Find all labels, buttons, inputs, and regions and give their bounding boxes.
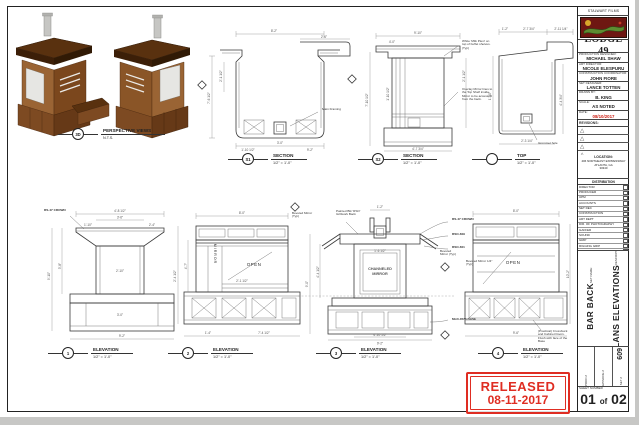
- perspective-views-drawing: [14, 12, 194, 134]
- view-title: SECTION: [401, 153, 437, 160]
- elevation4-title: 4 ELEVATION 1/2" = 1'-0": [478, 347, 563, 359]
- dim-label: 2'-1 1/2": [236, 279, 248, 283]
- dim-label: 1'-6 1/2": [374, 249, 386, 253]
- dim-label: 9'-0": [305, 281, 309, 287]
- dim-label: 9'-10": [47, 272, 51, 280]
- dim-label: 4'-7 3/4": [412, 147, 424, 151]
- elevation4-note-left: Beveled Mirror (Typ): [440, 250, 456, 257]
- dim-label: 1'-10 1/2": [386, 87, 390, 100]
- location-block: LOCATION: 406 NORTHEAST EXPRESSWAY ATLAN…: [578, 155, 629, 179]
- channeled-mirror-label: CHANNELED: [368, 267, 392, 271]
- studio-name: STALWART FILMS: [578, 7, 629, 16]
- dim-label: 2'-3 1/4": [521, 139, 533, 143]
- dim-label: 8'-2": [271, 29, 277, 33]
- checkbox-icon: [623, 223, 627, 227]
- released-stamp: RELEASED 08-11-2017: [466, 372, 570, 414]
- view-title: PERSPECTIVE VIEWS: [101, 128, 165, 135]
- dim-label: 2'-6": [321, 35, 327, 39]
- sheet-number-current: 01: [580, 391, 596, 407]
- show-logo: [578, 16, 629, 40]
- dim-label: 2'-4": [149, 223, 155, 227]
- view-title: SECTION: [271, 153, 307, 160]
- credit-set-designer: SET DESIGNER:LANCE TOTTEN: [578, 82, 629, 92]
- view-tag-circle: 3D: [72, 128, 84, 140]
- credit-scale: SCALE:AS NOTED: [578, 101, 629, 111]
- view-tag: S2: [375, 157, 380, 162]
- view-title: ELEVATION: [91, 347, 133, 354]
- elevation4-note-doors: (Practical) Crossbuck and Cabinet Doors.…: [538, 330, 572, 344]
- checkbox-icon: [623, 185, 627, 189]
- dim-label: 2'-1 1/2": [462, 70, 466, 82]
- elevation3-note-left: Painted Blk 'RSO' Grillwork Back: [336, 210, 366, 217]
- checkbox-icon: [623, 207, 627, 211]
- view-ref-marker: [441, 263, 449, 339]
- dim-label: 1'-2": [502, 27, 508, 31]
- view-title: ELEVATION: [211, 347, 253, 354]
- credit-art-director: ART DIRECTOR:NICOLE ELESPURU: [578, 63, 629, 73]
- top-view-title: TOP 1/2" = 1'-0": [472, 153, 540, 165]
- title-block: STALWART FILMS LODGE 49 PRODUCTION DESIG…: [577, 7, 628, 411]
- sheet-number-block: SHEET NUMBER 01 of 02: [578, 387, 629, 409]
- cabinet-right: [114, 15, 190, 138]
- sheet-number-of: of: [600, 397, 608, 406]
- credit-construction-coordinator: CONSTRUCTION COORDINATOR:JOHN FIORE: [578, 72, 629, 82]
- drawing-sheet-page: { "titleblock": { "studio": "STALWART FI…: [0, 0, 639, 425]
- show-title: LODGE 49: [578, 40, 629, 53]
- view-tag: 2: [187, 351, 189, 356]
- dim-label: 1'-10 1/2": [241, 148, 254, 152]
- dim-label: 4'-8 1/2": [114, 209, 126, 213]
- checkbox-icon: [623, 212, 627, 216]
- dim-label: 3'-8": [58, 263, 62, 269]
- elevation-4-drawing: OPEN 8'-0" 10'-2" 9'-6": [455, 196, 573, 346]
- dim-label: 8'-0": [513, 209, 519, 213]
- view-title: TOP: [515, 153, 540, 160]
- set-name-value: BAR BACK: [586, 283, 595, 330]
- elevation-2-drawing: MIRROR OPEN 8'-0" 2'-4 1/2" 4'-7" 2'-1 1…: [168, 196, 308, 346]
- set-number-label: SET #: [619, 377, 623, 385]
- dim-label: 4'-7": [184, 263, 188, 269]
- view-scale: 1/2" = 1'-0": [91, 354, 133, 359]
- dim-label: 2'-7 3/4": [523, 27, 535, 31]
- section-1-drawing: 8'-2" 2'-6" 2'-1 1/2" 7'-6 1/2" 3'-0" 1'…: [200, 16, 360, 152]
- open-label: OPEN: [247, 262, 262, 267]
- perspective-view-title: 3D PERSPECTIVE VIEWS N.T.S.: [58, 128, 165, 140]
- top-view-note: Grommet hole: [538, 142, 568, 145]
- checkbox-icon: [623, 239, 627, 243]
- view-title: ELEVATION: [521, 347, 563, 354]
- dim-label: 2'-11 1/4": [554, 27, 567, 31]
- revision-triangle-icon: △: [580, 128, 584, 134]
- mirror-label: MIRROR: [213, 244, 217, 265]
- elevation1-crown-callout: RS-47 CROWN: [44, 209, 74, 212]
- dim-label: 9'-10": [414, 31, 422, 35]
- view-scale: N.T.S.: [101, 135, 165, 140]
- view-scale: 1/2" = 1'-0": [211, 354, 253, 359]
- set-name-block: SET NAME: BAR BACK DESCRIPTION: PLANS EL…: [578, 251, 629, 347]
- dim-label: 2'-10": [116, 269, 124, 273]
- dim-label: 1'-4": [205, 331, 211, 335]
- dim-label: 4'-4 1/2": [316, 266, 320, 278]
- checkbox-icon: [623, 228, 627, 232]
- dim-label: 7'-4 1/2": [258, 331, 270, 335]
- section1-title: S1 SECTION 1/2" = 1'-0": [228, 153, 307, 165]
- elevation-3-drawing: CHANNELED MIRROR 1'-2" 9'-0" 4'-4 1/2" 1…: [296, 192, 456, 348]
- elevation3-title: 3 ELEVATION 1/2" = 1'-0": [316, 347, 401, 359]
- distribution-list: DIRECTOR PRODUCER UPM ACCOUNTS SET DEC C…: [578, 185, 629, 251]
- dim-label: 1'-10": [488, 92, 492, 100]
- dim-label: 9'-2": [119, 334, 125, 338]
- dim-label: 3'-6": [117, 216, 123, 220]
- dim-label: 2'-1 1/2": [219, 70, 223, 82]
- view-scale: 1/2" = 1'-0": [401, 160, 437, 165]
- view-title: ELEVATION: [359, 347, 401, 354]
- revisions-rows: △ △ △ △: [578, 127, 629, 155]
- checkbox-icon: [623, 244, 627, 248]
- dim-label: 8'-0": [239, 211, 245, 215]
- dim-label: 9'-2": [307, 148, 313, 152]
- dim-label: 3'-0": [117, 313, 123, 317]
- view-tag: 3D: [75, 132, 80, 137]
- view-scale: 1/2" = 1'-0": [271, 160, 307, 165]
- checkbox-icon: [623, 196, 627, 200]
- checkbox-icon: [623, 201, 627, 205]
- view-tag: S1: [245, 157, 250, 162]
- view-tag: 4: [497, 351, 499, 356]
- elevation1-title: 1 ELEVATION 1/2" = 1'-0": [48, 347, 133, 359]
- revisions-header: REVISIONS:: [578, 120, 629, 127]
- view-scale: 1/2" = 1'-0": [521, 354, 563, 359]
- channeled-mirror-label2: MIRROR: [372, 272, 388, 276]
- episode-block: PROD # EPISODE # 609 SET #: [578, 347, 629, 387]
- credit-drawn-by: DRAWN BY:B. KING: [578, 91, 629, 101]
- view-tag: 3: [335, 351, 337, 356]
- checkbox-icon: [623, 217, 627, 221]
- dim-label: 3'-0": [277, 141, 283, 145]
- dim-label: 4'-10 1/2": [373, 333, 386, 337]
- sheet-number-total: 02: [611, 391, 627, 407]
- section2-title: S2 SECTION 1/2" = 1'-0": [358, 153, 437, 165]
- description-value: PLANS ELEVATIONS: [611, 265, 621, 347]
- set-name-label: SET NAME:: [589, 267, 593, 283]
- section-2-drawing: 9'-10" 4'-0" 2'-1 1/2" 7'-10 1/2" 1'-10 …: [362, 16, 474, 152]
- view-scale: 1/2" = 1'-0": [359, 354, 401, 359]
- dim-label: 10'-2": [566, 270, 570, 278]
- credit-production-designer: PRODUCTION DESIGNER:MICHAEL SHAW: [578, 53, 629, 63]
- checkbox-icon: [623, 233, 627, 237]
- checkbox-icon: [623, 191, 627, 195]
- dim-label: 2'-4 1/2": [173, 270, 177, 282]
- view-tag: 1: [67, 351, 69, 356]
- dim-label: 7'-6 1/2": [207, 92, 211, 104]
- view-scale: 1/2" = 1'-0": [515, 160, 540, 165]
- cabinet-left: [16, 13, 109, 136]
- dim-label: 9'-6": [513, 331, 519, 335]
- revision-triangle-icon: △: [580, 144, 584, 150]
- dim-label: 7'-10 1/2": [365, 93, 369, 106]
- prod-number-label: PROD #: [584, 375, 588, 386]
- set-number-value: 609: [617, 348, 624, 360]
- dim-label: 1'-2": [377, 205, 383, 209]
- dim-label: 4'-4 3/4": [559, 94, 563, 106]
- dim-label: 9'-2": [377, 342, 383, 346]
- dim-label: 1'-10": [84, 223, 92, 227]
- revision-triangle-icon: △: [580, 136, 584, 142]
- section1-note: Main Framing: [322, 108, 356, 111]
- episode-number-label: EPISODE #: [601, 370, 605, 386]
- description-label: DESCRIPTION:: [614, 251, 618, 265]
- dim-label: 4'-0": [389, 40, 395, 44]
- elevation-1-drawing: 4'-8 1/2" 3'-6" 1'-10" 2'-4" 9'-10" 3'-8…: [40, 196, 180, 346]
- elevation2-title: 2 ELEVATION 1/2" = 1'-0": [168, 347, 253, 359]
- open-label: OPEN: [506, 260, 521, 265]
- top-view-drawing: 1'-2" 2'-7 3/4" 2'-11 1/4" 1'-10" 4'-4 3…: [485, 16, 575, 152]
- credit-date: DATE:08/10/2017: [578, 111, 629, 121]
